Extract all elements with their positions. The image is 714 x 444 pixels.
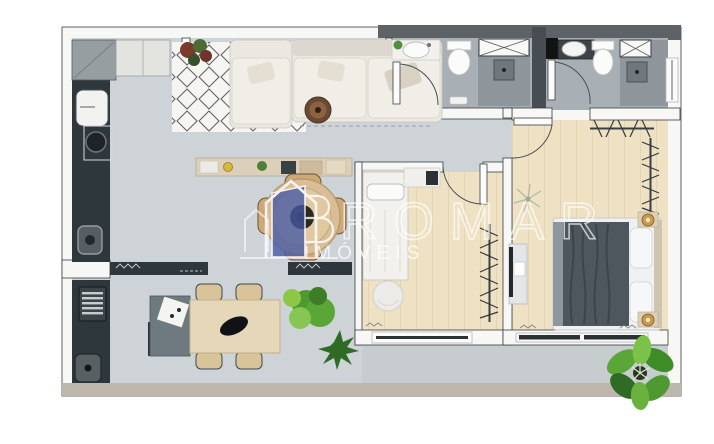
laptop-icon	[514, 262, 525, 276]
nightstand-lamp-icon	[638, 212, 658, 227]
round-side-table-icon	[305, 97, 331, 123]
toilet-icon	[447, 41, 471, 75]
mirror-cabinet-icon	[546, 38, 558, 59]
floor-plan-image: ROMAR IMÓVEIS	[0, 0, 714, 444]
tv-console-icon	[509, 244, 527, 304]
window-icon	[372, 332, 472, 343]
balcony-grill-area	[72, 280, 110, 383]
laundry-sink-icon	[86, 132, 106, 152]
nightstand-lamp-icon	[638, 312, 658, 327]
sliding-door-icon	[516, 333, 648, 342]
watermark-subtitle-text: IMÓVEIS	[304, 242, 425, 264]
bathroom-sink-icon	[562, 42, 586, 57]
kitchen	[196, 158, 352, 176]
toilet-icon	[592, 41, 614, 75]
kitchen-divider-wall	[110, 262, 208, 275]
small-plant-icon	[394, 41, 403, 50]
bottom-wall	[62, 383, 681, 396]
tv-icon	[509, 247, 513, 297]
washing-machine-icon	[76, 90, 108, 126]
shaft-wall	[532, 27, 546, 118]
pillow-icon	[630, 228, 652, 268]
top-service-band	[378, 25, 681, 40]
desk-tv-icon	[404, 168, 440, 187]
floor-plan-canvas: ROMAR IMÓVEIS	[0, 0, 714, 444]
cooktop-icon	[224, 163, 233, 172]
bath-mat-icon	[450, 97, 467, 104]
pot-icon	[281, 161, 296, 174]
herb-plant-icon	[257, 161, 267, 171]
pouf-icon	[373, 281, 403, 311]
bathroom-sink-icon	[403, 42, 429, 58]
